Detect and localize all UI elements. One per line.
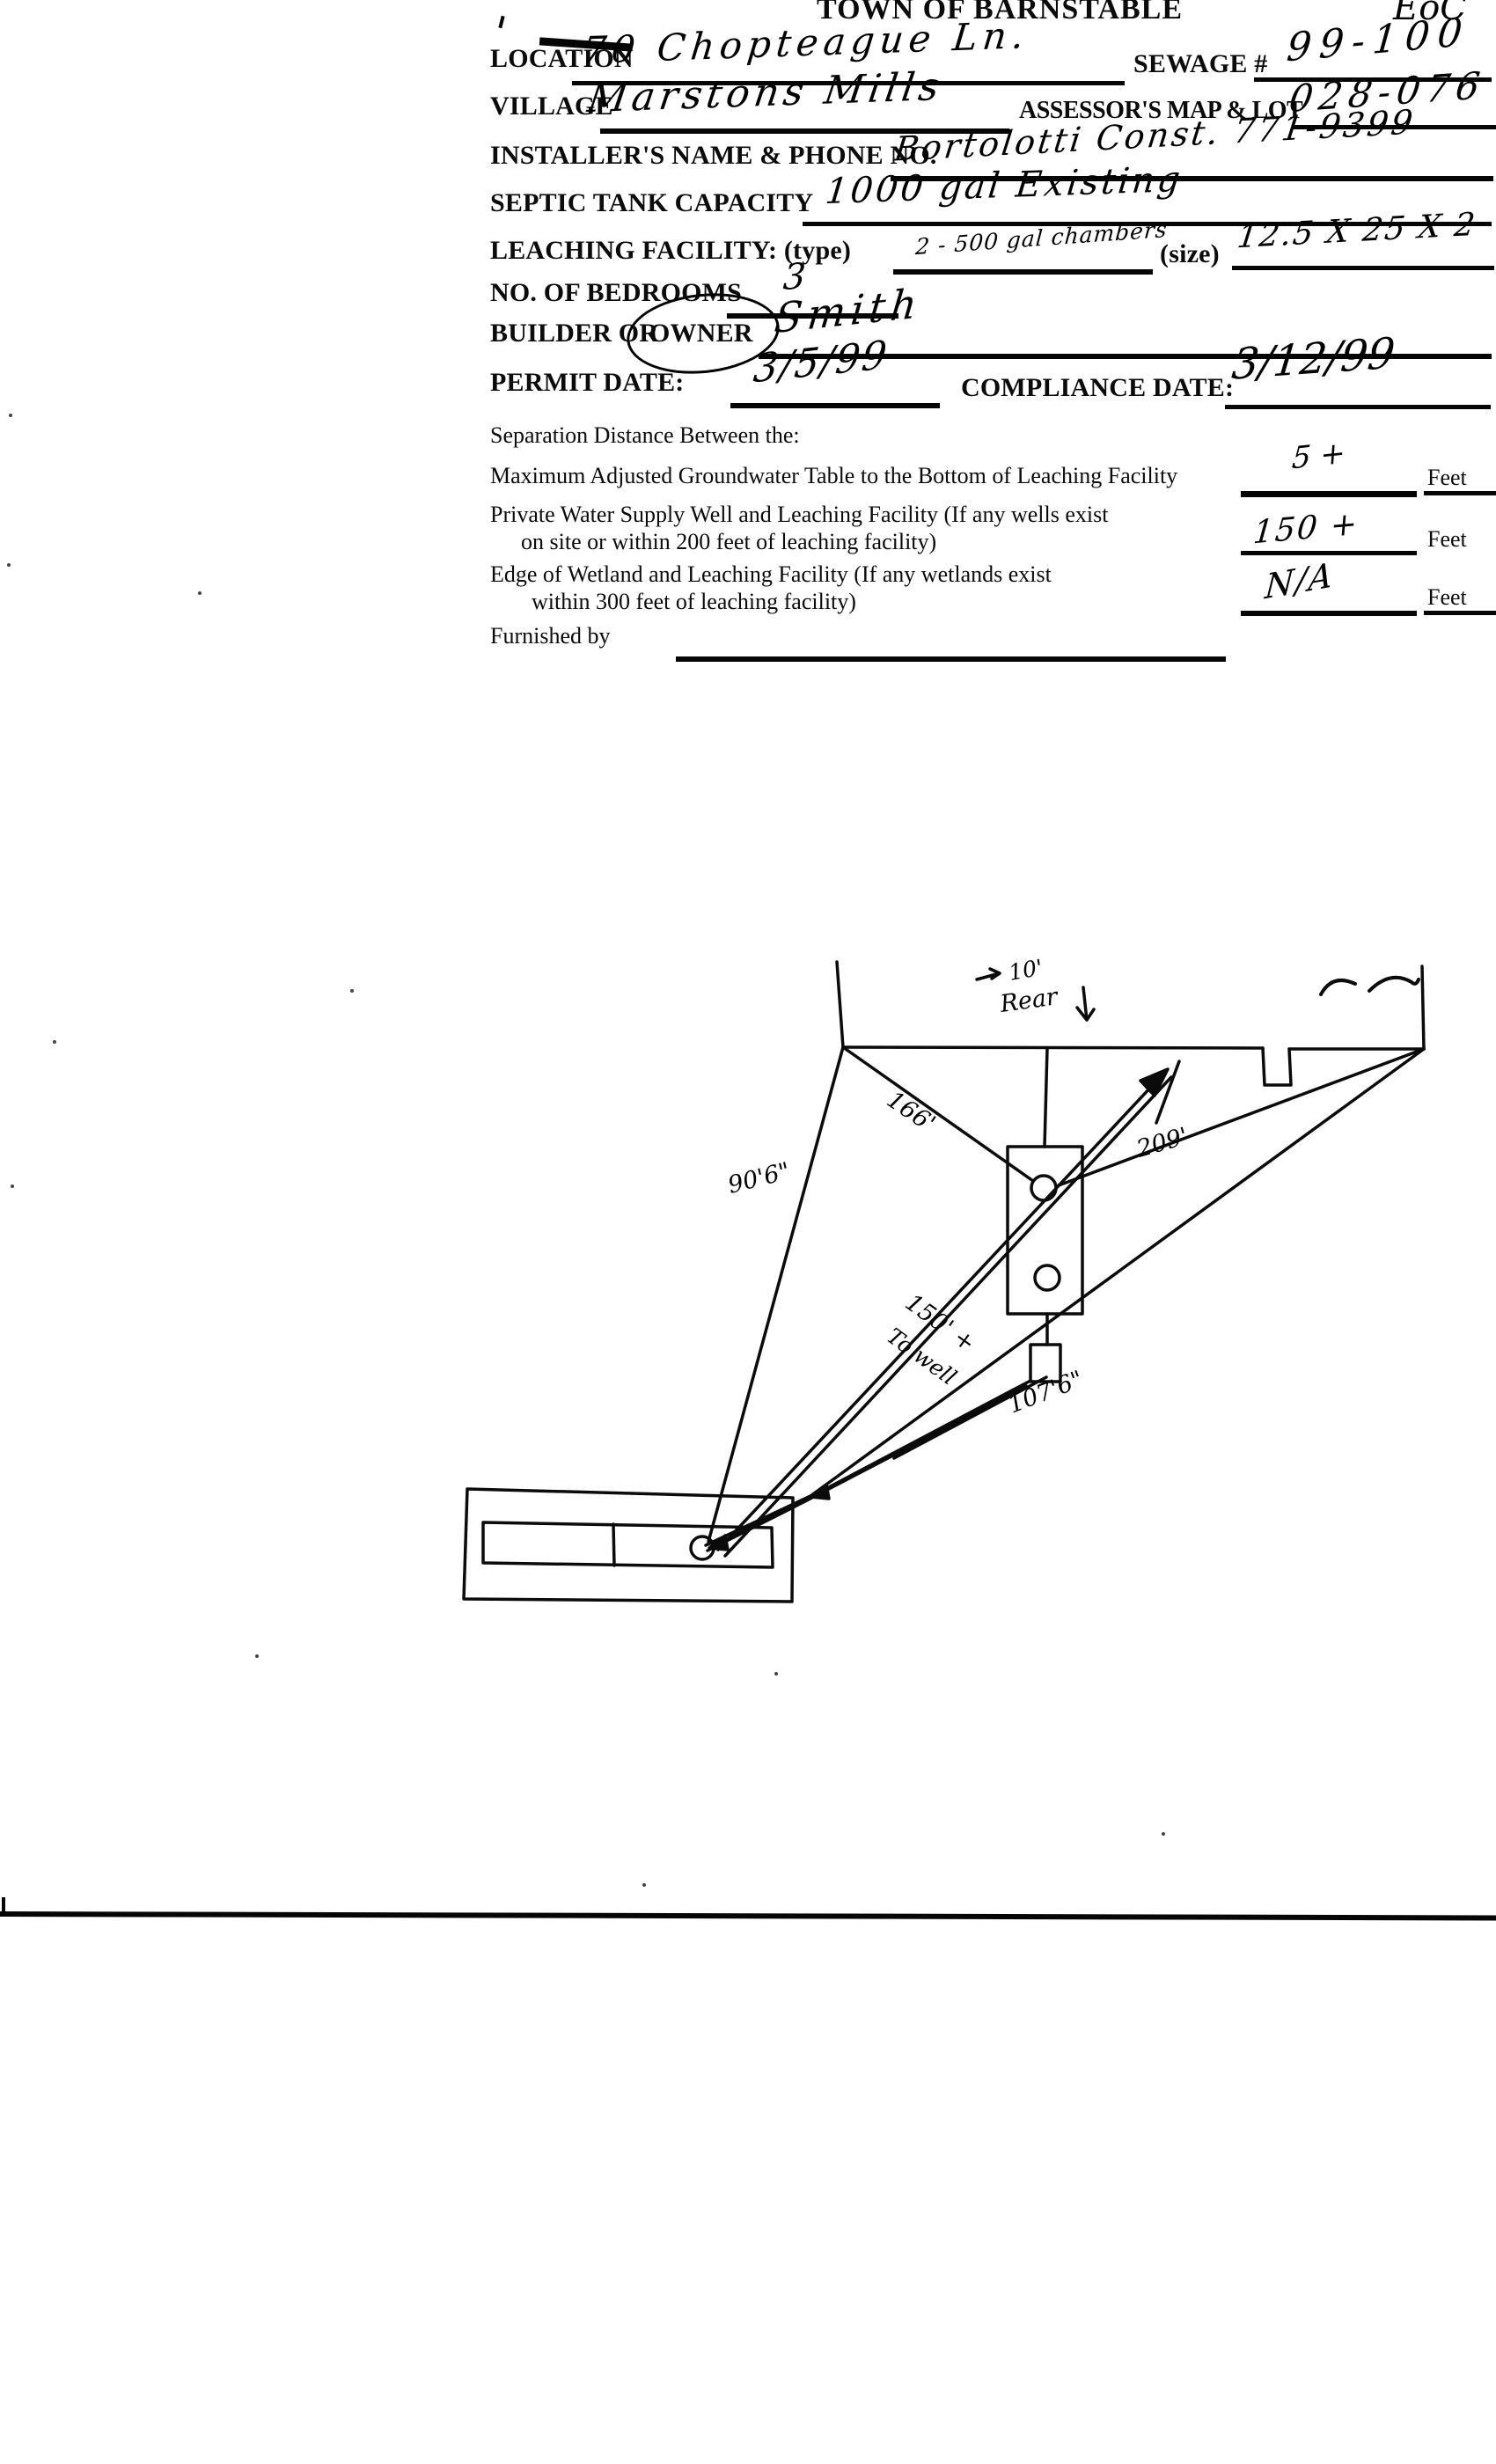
septic-tank bbox=[1008, 1147, 1082, 1345]
scan-speckle bbox=[7, 563, 11, 567]
wetland-feet-underline bbox=[1424, 611, 1496, 615]
groundwater-value: 5 + bbox=[1291, 436, 1346, 477]
bottom-line-left-tick bbox=[2, 1897, 5, 1913]
wetland-row-label-line2: within 300 feet of leaching facility) bbox=[532, 589, 856, 615]
scan-speckle bbox=[642, 1883, 646, 1887]
well-distance-value: 150 + bbox=[1251, 506, 1360, 552]
size-value: 12.5 X 25 X 2 bbox=[1236, 207, 1479, 256]
scan-speckle bbox=[350, 989, 354, 993]
scan-speckle bbox=[11, 1184, 14, 1188]
feet-label-3: Feet bbox=[1427, 584, 1467, 611]
wetland-row-label-line1: Edge of Wetland and Leaching Facility (I… bbox=[490, 561, 1052, 588]
groundwater-row-label: Maximum Adjusted Groundwater Table to th… bbox=[490, 463, 1177, 489]
scan-speckle bbox=[774, 1672, 778, 1676]
compliance-underline bbox=[1225, 405, 1491, 409]
squiggle-marks bbox=[1321, 978, 1419, 994]
permit-date-label: PERMIT DATE: bbox=[490, 368, 684, 398]
permit-underline bbox=[730, 403, 940, 408]
well-row-label-line2: on site or within 200 feet of leaching f… bbox=[521, 529, 936, 555]
scan-speckle bbox=[198, 591, 202, 595]
compliance-date-label: COMPLIANCE DATE: bbox=[961, 373, 1234, 403]
groundwater-underline bbox=[1241, 491, 1417, 497]
size-label: (size) bbox=[1160, 239, 1220, 269]
dim-107-6: 107'6" bbox=[1004, 1366, 1087, 1419]
feet-label-2: Feet bbox=[1427, 526, 1467, 553]
well-row-label-line1: Private Water Supply Well and Leaching F… bbox=[490, 502, 1108, 528]
well-distance-line bbox=[708, 1381, 1030, 1551]
down-arrow-icon bbox=[1077, 987, 1094, 1020]
village-value: Marstons Mills bbox=[585, 64, 947, 121]
site-sketch: 10' Rear 166' 90'6" 209' 150' + To well … bbox=[440, 933, 1461, 1637]
furnished-by-label: Furnished by bbox=[490, 623, 611, 649]
sewage-number-value: 99-100 bbox=[1285, 10, 1472, 71]
installer-label: INSTALLER'S NAME & PHONE NO. bbox=[490, 141, 937, 171]
dim-90-6: 90'6" bbox=[725, 1157, 793, 1199]
scan-speckle bbox=[9, 414, 12, 417]
house-divider bbox=[613, 1524, 614, 1566]
house-outline bbox=[464, 1489, 793, 1602]
tank-cover-1 bbox=[1031, 1176, 1056, 1200]
bottom-separator-line bbox=[0, 1911, 1496, 1920]
groundwater-feet-underline bbox=[1424, 491, 1496, 495]
location-value: 70 Chopteague Ln. bbox=[581, 13, 1031, 72]
sewage-number-label: SEWAGE # bbox=[1133, 49, 1267, 79]
size-underline bbox=[1232, 266, 1494, 270]
stray-tick-mark bbox=[498, 16, 504, 29]
wetland-distance-value: N/A bbox=[1264, 554, 1335, 606]
feet-label-1: Feet bbox=[1427, 465, 1467, 491]
septic-capacity-label: SEPTIC TANK CAPACITY bbox=[490, 188, 813, 218]
furnished-by-underline bbox=[676, 656, 1226, 662]
scan-speckle bbox=[255, 1654, 259, 1658]
compliance-date-value: 3/12/99 bbox=[1229, 328, 1397, 389]
well-underline bbox=[1241, 551, 1417, 555]
arrowhead bbox=[810, 1485, 829, 1499]
scanned-form-page: TOWN OF BARNSTABLE EoC LOCATION 70 Chopt… bbox=[0, 0, 1496, 2464]
lot-notch bbox=[1263, 1048, 1291, 1085]
flow-arrow bbox=[718, 1061, 1179, 1556]
wetland-underline bbox=[1241, 611, 1417, 616]
scan-speckle bbox=[53, 1040, 56, 1044]
scan-speckle bbox=[1162, 1832, 1165, 1836]
tank-cover-2 bbox=[1035, 1265, 1060, 1290]
leaching-type-underline bbox=[893, 269, 1153, 275]
rear-setback-dim: 10' bbox=[1007, 955, 1045, 986]
dim-209: 209' bbox=[1133, 1123, 1191, 1163]
separation-heading: Separation Distance Between the: bbox=[490, 422, 800, 449]
dimension-lines bbox=[706, 1047, 1424, 1545]
rear-setback-word: Rear bbox=[998, 983, 1061, 1018]
